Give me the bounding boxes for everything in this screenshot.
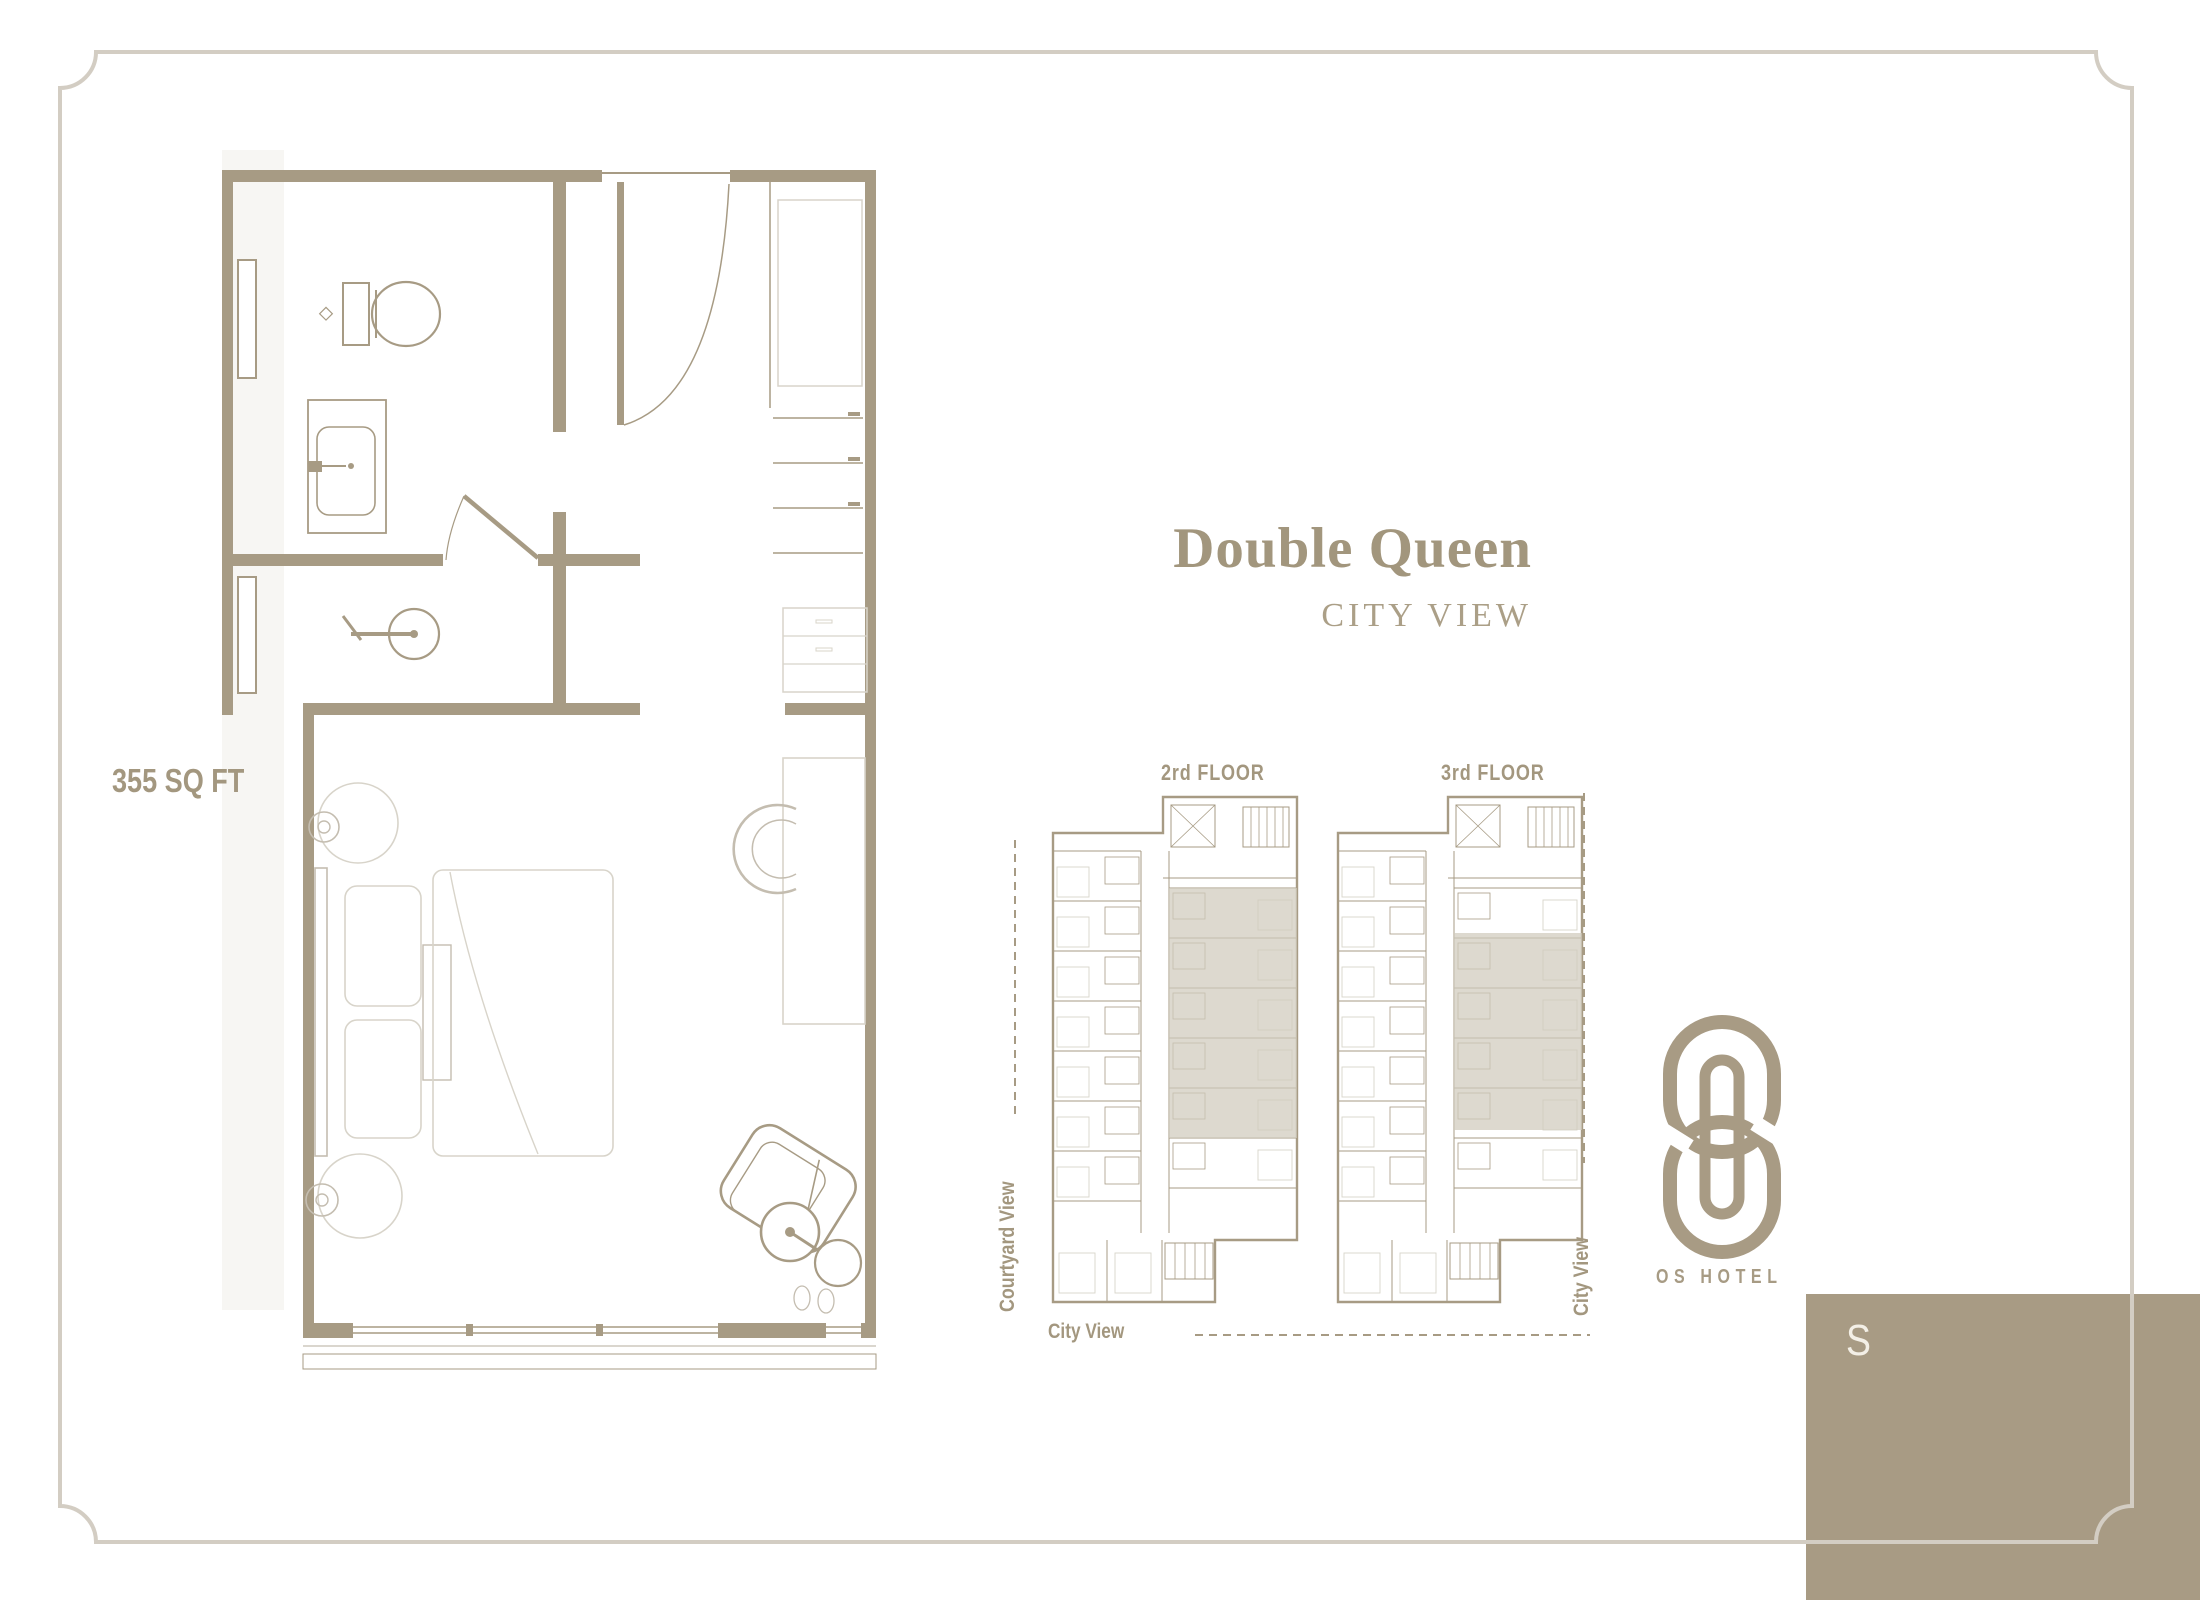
- city-view-right-dash: [1583, 793, 1585, 1163]
- page-title: Double Queen: [1140, 518, 1532, 581]
- city-view-right-label: City View: [1570, 1237, 1594, 1316]
- pillow: [345, 1020, 421, 1138]
- highlight-3f: [1454, 933, 1582, 1130]
- os-hotel-logo-icon: [1650, 1012, 1800, 1262]
- bathroom-door: [446, 496, 538, 560]
- wall-niche: [238, 577, 256, 693]
- bed-runner: [423, 945, 451, 1080]
- bedroom: [306, 758, 865, 1313]
- desk: [783, 758, 865, 1024]
- desk-chair: [734, 805, 796, 893]
- key-floor-plans: [1040, 790, 1600, 1315]
- balcony-hatch: [303, 1354, 876, 1369]
- key-plan-2f: [1053, 797, 1297, 1302]
- toilet: [320, 282, 440, 346]
- page-subtitle: CITY VIEW: [1140, 597, 1532, 635]
- courtyard-view-label: Courtyard View: [996, 1181, 1020, 1312]
- side-table: [761, 1203, 861, 1286]
- bed: [315, 868, 613, 1156]
- area-label: 355 SQ FT: [112, 762, 244, 800]
- wall-niche: [238, 260, 256, 378]
- city-view-bottom-label: City View: [1048, 1320, 1124, 1344]
- room-floor-plan: [218, 168, 880, 1393]
- courtyard-view-dash: [1014, 840, 1016, 1115]
- floor-lamp: [309, 783, 398, 863]
- corner-tab-letter: S: [1846, 1316, 1871, 1366]
- bathroom: [238, 260, 538, 693]
- duvet: [433, 870, 613, 1156]
- corner-tab: S: [1806, 1294, 2200, 1600]
- key-plan-3f: [1338, 797, 1582, 1302]
- brand-name: OS HOTEL: [1656, 1266, 1783, 1289]
- window-wall: [303, 1323, 876, 1369]
- entry-door: [617, 182, 729, 425]
- title-block: Double Queen CITY VIEW: [1140, 518, 1532, 635]
- pillow: [345, 886, 421, 1006]
- shower-head: [343, 609, 439, 659]
- city-view-bottom-dash: [1195, 1334, 1590, 1336]
- brochure-page: 355 SQ FT Double Queen CITY VIEW: [0, 0, 2200, 1600]
- floor-label-3f: 3rd FLOOR: [1441, 760, 1545, 786]
- floor-lamp: [306, 1154, 402, 1238]
- slippers: [794, 1286, 834, 1313]
- floor-label-2f: 2rd FLOOR: [1161, 760, 1265, 786]
- closet-shelves: [770, 182, 867, 692]
- highlight-2f: [1169, 888, 1297, 1138]
- drawer-unit: [783, 608, 867, 692]
- sink: [308, 400, 386, 533]
